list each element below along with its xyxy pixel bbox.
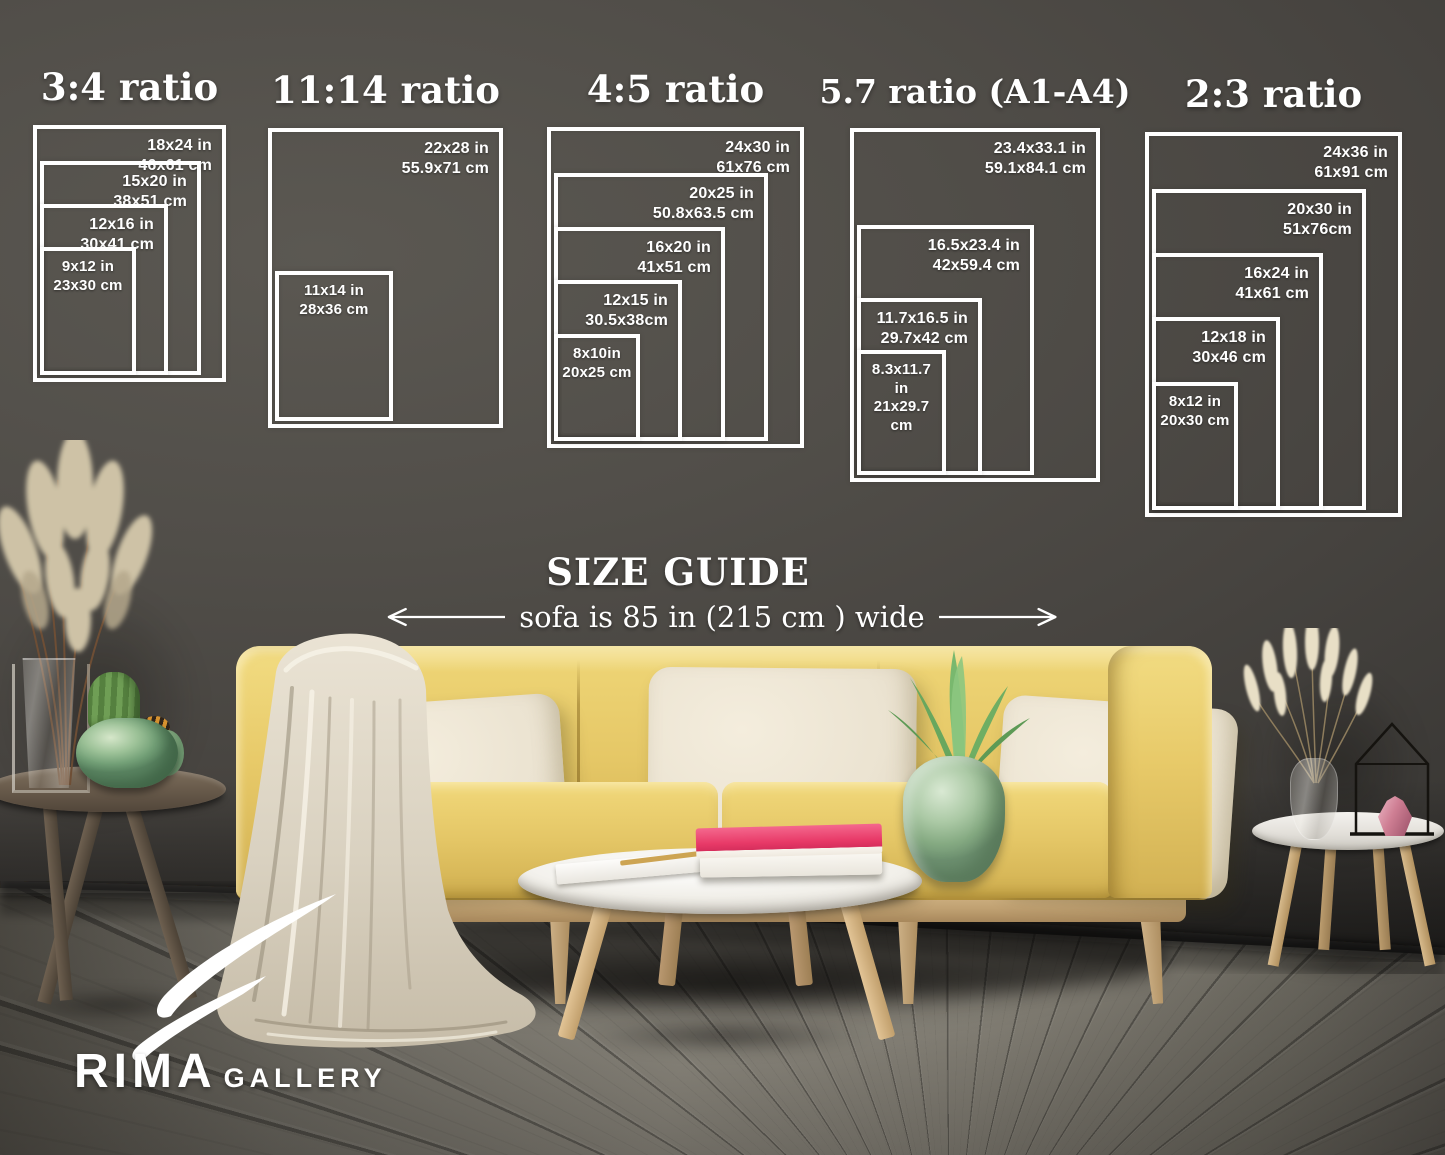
size-rect: 8.3x11.7 in21x29.7 cm (857, 350, 946, 475)
size-label: 20x25 in50.8x63.5 cm (653, 184, 754, 224)
plant-vase (903, 756, 1005, 882)
size-label: 11x14 in28x36 cm (281, 282, 387, 319)
size-label: 16.5x23.4 in42x59.4 cm (928, 236, 1020, 276)
sofa-note-text: sofa is 85 in (215 cm ) wide (519, 600, 924, 634)
ratio-title: 11:14 ratio (271, 68, 500, 112)
size-label: 9x12 in23x30 cm (46, 258, 130, 295)
size-label: 16x24 in41x61 cm (1235, 264, 1309, 304)
sofa-seam (577, 660, 580, 786)
logo-text: RIMA GALLERY (74, 1048, 387, 1096)
logo-suffix: GALLERY (224, 1065, 387, 1092)
coffee-table-shadow (520, 1012, 930, 1060)
size-rect: 8x10in20x25 cm (554, 334, 640, 441)
ratio-group-2-3: 2:3 ratio 24x36 in61x91 cm 20x30 in51x76… (1145, 132, 1402, 517)
size-rect: 9x12 in23x30 cm (40, 247, 136, 375)
size-guide-title: SIZE GUIDE (478, 550, 878, 594)
arrow-left-icon (382, 605, 505, 629)
ratio-group-4-5: 4:5 ratio 24x30 in61x76 cm 20x25 in50.8x… (547, 127, 804, 448)
sofa-width-note: sofa is 85 in (215 cm ) wide (382, 600, 1062, 634)
arrow-right-icon (939, 605, 1062, 629)
ratio-title: 2:3 ratio (1185, 72, 1362, 116)
book-pink (696, 824, 883, 859)
size-label: 16x20 in41x51 cm (637, 238, 711, 278)
size-guide-poster: 3:4 ratio 18x24 in46x61 cm 15x20 in38x51… (0, 0, 1445, 1155)
green-pot (76, 718, 178, 788)
sofa-arm-right (1108, 646, 1212, 898)
size-label: 24x36 in61x91 cm (1314, 143, 1388, 183)
ratio-title: 3:4 ratio (41, 65, 218, 109)
size-rect: 11x14 in28x36 cm (275, 271, 393, 421)
size-label: 12x18 in30x46 cm (1192, 328, 1266, 368)
ratio-title: 5.7 ratio (A1-A4) (819, 72, 1130, 111)
size-label: 20x30 in51x76cm (1283, 200, 1352, 240)
logo-brand: RIMA (74, 1048, 217, 1096)
size-label: 8.3x11.7 in21x29.7 cm (863, 361, 940, 435)
ratio-group-3-4: 3:4 ratio 18x24 in46x61 cm 15x20 in38x51… (33, 125, 226, 382)
vase-metal-stand (12, 664, 90, 793)
size-rect: 8x12 in20x30 cm (1152, 382, 1238, 510)
size-label: 11.7x16.5 in29.7x42 cm (877, 309, 968, 349)
size-label: 23.4x33.1 in59.1x84.1 cm (985, 139, 1086, 179)
size-label: 22x28 in55.9x71 cm (402, 139, 489, 179)
brand-logo: RIMA GALLERY (60, 880, 430, 1120)
size-label: 24x30 in61x76 cm (716, 138, 790, 178)
size-label: 8x10in20x25 cm (560, 345, 634, 382)
ratio-title: 4:5 ratio (587, 67, 764, 111)
ratio-group-11-14: 11:14 ratio 22x28 in55.9x71 cm 11x14 in2… (268, 128, 503, 428)
size-label: 12x15 in30.5x38cm (585, 291, 668, 331)
size-label: 8x12 in20x30 cm (1158, 393, 1232, 430)
logo-swoosh-icon (108, 888, 343, 1063)
ratio-group-5-7: 5.7 ratio (A1-A4) 23.4x33.1 in59.1x84.1 … (850, 128, 1100, 482)
small-glass-vase (1290, 758, 1338, 840)
